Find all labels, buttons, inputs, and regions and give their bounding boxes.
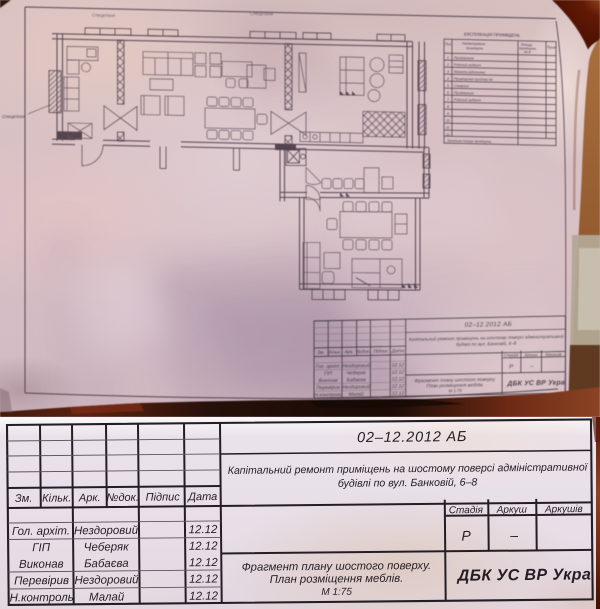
svg-text:Санвузол: Санвузол: [454, 84, 469, 88]
svg-text:8: 8: [447, 105, 449, 109]
svg-text:2: 2: [446, 63, 449, 67]
svg-text:11: 11: [446, 126, 450, 130]
svg-text:4: 4: [447, 77, 449, 81]
svg-text:Спецв'язок: Спецв'язок: [92, 12, 116, 18]
svg-text:Спецв'язок: Спецв'язок: [2, 114, 26, 119]
svg-text:приміщень: приміщень: [466, 46, 483, 50]
svg-text:Приймальня: Приймальня: [454, 91, 474, 95]
svg-text:1: 1: [447, 56, 449, 60]
svg-text:9: 9: [447, 112, 449, 116]
svg-text:10: 10: [446, 119, 450, 123]
svg-text:3: 3: [447, 70, 449, 74]
svg-text:12: 12: [446, 133, 450, 137]
svg-text:кв.м: кв.м: [524, 50, 531, 54]
svg-text:5: 5: [447, 84, 449, 88]
svg-text:7: 7: [447, 98, 449, 102]
svg-text:Кімната відпочинку: Кімната відпочинку: [454, 70, 486, 75]
svg-text:Приймальня: Приймальня: [454, 56, 474, 60]
svg-text:Загальна площа приміщень: Загальна площа приміщень: [447, 139, 492, 144]
svg-text:Робочий кабінет: Робочий кабінет: [454, 98, 481, 103]
svg-text:Робочий кабінет: Робочий кабінет: [454, 63, 481, 68]
svg-text:Поз.: Поз.: [445, 42, 452, 46]
svg-text:Приміщення прийому їжі: Приміщення прийому їжі: [454, 77, 493, 82]
svg-text:Спецв'язок: Спецв'язок: [250, 11, 274, 17]
svg-text:Прим.: Прим.: [547, 45, 557, 49]
svg-text:6: 6: [447, 91, 449, 95]
svg-text:ЕКСПЛІКАЦІЯ ПРИМІЩЕНЬ: ЕКСПЛІКАЦІЯ ПРИМІЩЕНЬ: [464, 32, 520, 38]
